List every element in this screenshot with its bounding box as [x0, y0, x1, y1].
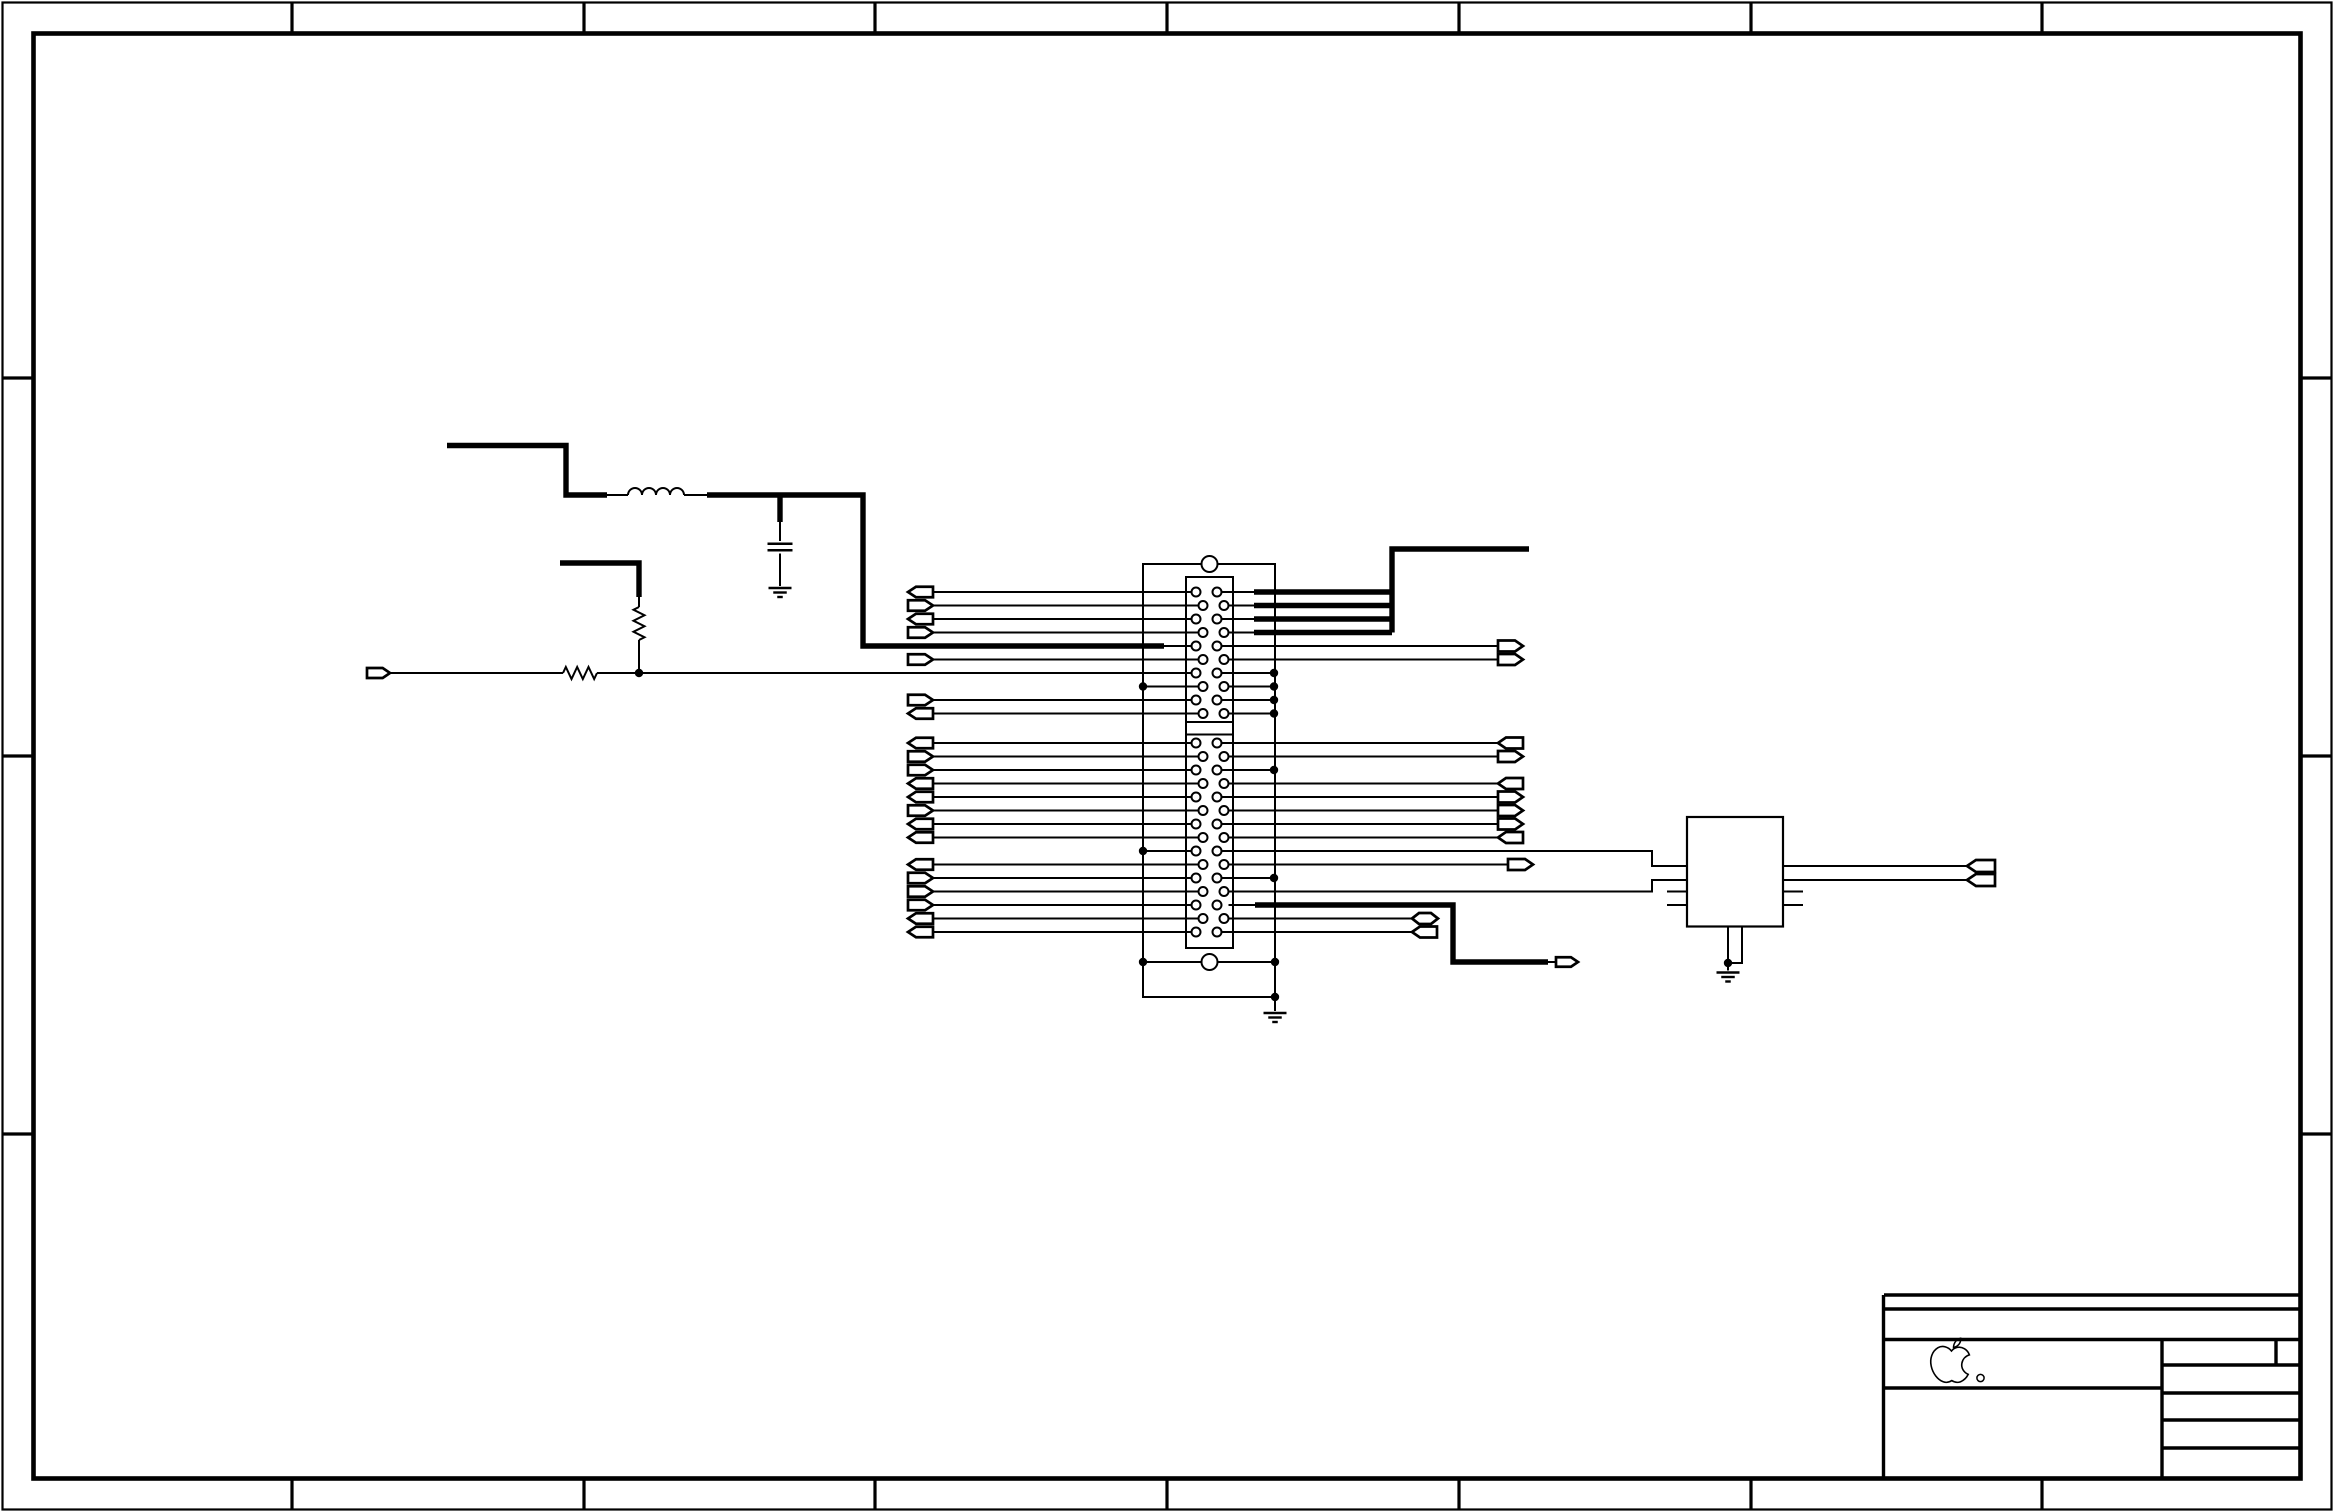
connector-pin: [1220, 833, 1229, 842]
connector-pin: [1192, 615, 1201, 624]
bus-wire: [1392, 549, 1529, 633]
junction-dot: [1724, 959, 1732, 967]
connector-pin: [1192, 793, 1201, 802]
ic-body: [1687, 817, 1783, 927]
net-flag-icon: [908, 859, 933, 870]
junction-dot: [1270, 709, 1278, 717]
inductor: [628, 488, 684, 495]
junction-dot: [1139, 682, 1147, 690]
net-flag-icon: [908, 654, 933, 665]
connector-pin: [1220, 601, 1229, 610]
net-flag-icon: [1498, 832, 1523, 843]
net-flag-icon: [1498, 751, 1523, 762]
connector-pin: [1199, 860, 1208, 869]
connector-pin: [1199, 914, 1208, 923]
bus-wire: [707, 495, 1164, 646]
net-flag-icon: [908, 765, 933, 776]
connector-pin: [1192, 847, 1201, 856]
connector-pin: [1213, 874, 1222, 883]
connector-pin: [1192, 820, 1201, 829]
connector-pin: [1220, 752, 1229, 761]
wire: [1728, 927, 1742, 964]
connector-pin: [1213, 847, 1222, 856]
bus-wire: [447, 446, 607, 496]
junction-dot: [1270, 682, 1278, 690]
connector-pin: [1213, 766, 1222, 775]
connector-pin: [1213, 642, 1222, 651]
net-flag-icon: [908, 886, 933, 897]
net-flag-bidir-icon: [1412, 913, 1438, 924]
connector-pin: [1220, 914, 1229, 923]
connector-pin: [1192, 901, 1201, 910]
junction-dot: [1271, 993, 1279, 1001]
schematic-sheet: [0, 0, 2334, 1512]
net-flag-icon: [908, 614, 933, 625]
net-flag-icon: [908, 751, 933, 762]
net-flag-icon: [1498, 654, 1523, 665]
net-flag-icon: [908, 873, 933, 884]
wire: [1229, 880, 1688, 892]
connector-pin: [1199, 752, 1208, 761]
connector-pin: [1220, 806, 1229, 815]
connector-pin: [1220, 887, 1229, 896]
connector-pin: [1213, 901, 1222, 910]
net-flag-icon: [1508, 859, 1533, 870]
net-flag-icon: [908, 738, 933, 749]
connector-pin: [1192, 739, 1201, 748]
net-flag-icon: [1412, 927, 1437, 938]
connector-pin: [1192, 928, 1201, 937]
resistor: [634, 607, 645, 640]
junction-dot: [1139, 847, 1147, 855]
connector-pin: [1213, 588, 1222, 597]
junction-dot: [1270, 696, 1278, 704]
connector-pin: [1192, 696, 1201, 705]
connector-pin: [1199, 806, 1208, 815]
junction-dot: [1139, 958, 1147, 966]
net-flag-icon: [1498, 819, 1523, 830]
net-flag-icon: [908, 600, 933, 611]
connector-pin: [1192, 642, 1201, 651]
net-flag-icon: [908, 805, 933, 816]
connector-pin: [1220, 655, 1229, 664]
connector-pin: [1213, 820, 1222, 829]
junction-dot: [1270, 874, 1278, 882]
connector-pin: [1220, 628, 1229, 637]
connector-pin: [1192, 669, 1201, 678]
net-flag-icon: [1556, 957, 1578, 967]
connector-pin: [1199, 779, 1208, 788]
net-flag-icon: [367, 668, 390, 678]
bus-wire: [1255, 905, 1548, 962]
connector-pin: [1199, 833, 1208, 842]
connector-pin: [1213, 739, 1222, 748]
connector-pin: [1192, 766, 1201, 775]
net-flag-icon: [1498, 805, 1523, 816]
connector-pin: [1199, 655, 1208, 664]
junction-dot: [1270, 669, 1278, 677]
connector-pin: [1213, 696, 1222, 705]
net-flag-icon: [908, 778, 933, 789]
apple-logo-icon: [1931, 1346, 1970, 1382]
connector-pin: [1213, 615, 1222, 624]
junction-dot: [635, 669, 643, 677]
connector-pin: [1220, 709, 1229, 718]
bus-wire: [560, 563, 639, 597]
net-flag-icon: [908, 900, 933, 911]
net-flag-icon: [908, 708, 933, 719]
connector-pin: [1213, 669, 1222, 678]
net-flag-icon: [908, 792, 933, 803]
junction-dot: [1270, 766, 1278, 774]
net-flag-icon: [908, 627, 933, 638]
net-flag-icon: [908, 819, 933, 830]
net-flag-icon: [1498, 738, 1523, 749]
connector-pin: [1199, 709, 1208, 718]
mounting-hole: [1202, 556, 1218, 572]
mounting-hole: [1202, 954, 1218, 970]
net-flag-icon: [908, 913, 933, 924]
schematic-page: [0, 0, 2334, 1512]
junction-dot: [1271, 958, 1279, 966]
connector-pin: [1220, 682, 1229, 691]
connector-pin: [1213, 793, 1222, 802]
net-flag-icon: [1967, 860, 1995, 872]
net-flag-icon: [908, 832, 933, 843]
connector-pin: [1199, 887, 1208, 896]
connector-pin: [1192, 874, 1201, 883]
connector-pin: [1220, 779, 1229, 788]
net-flag-icon: [1967, 874, 1995, 886]
registered-mark-icon: [1977, 1374, 1984, 1381]
net-flag-icon: [1498, 792, 1523, 803]
resistor: [563, 667, 597, 679]
connector-pin: [1199, 601, 1208, 610]
net-flag-icon: [1498, 641, 1523, 652]
connector-pin: [1199, 628, 1208, 637]
connector-pin: [1192, 588, 1201, 597]
connector-pin: [1213, 928, 1222, 937]
net-flag-icon: [1498, 778, 1523, 789]
net-flag-icon: [908, 695, 933, 706]
net-flag-icon: [908, 587, 933, 598]
net-flag-icon: [908, 927, 933, 938]
connector-pin: [1199, 682, 1208, 691]
connector-pin: [1220, 860, 1229, 869]
